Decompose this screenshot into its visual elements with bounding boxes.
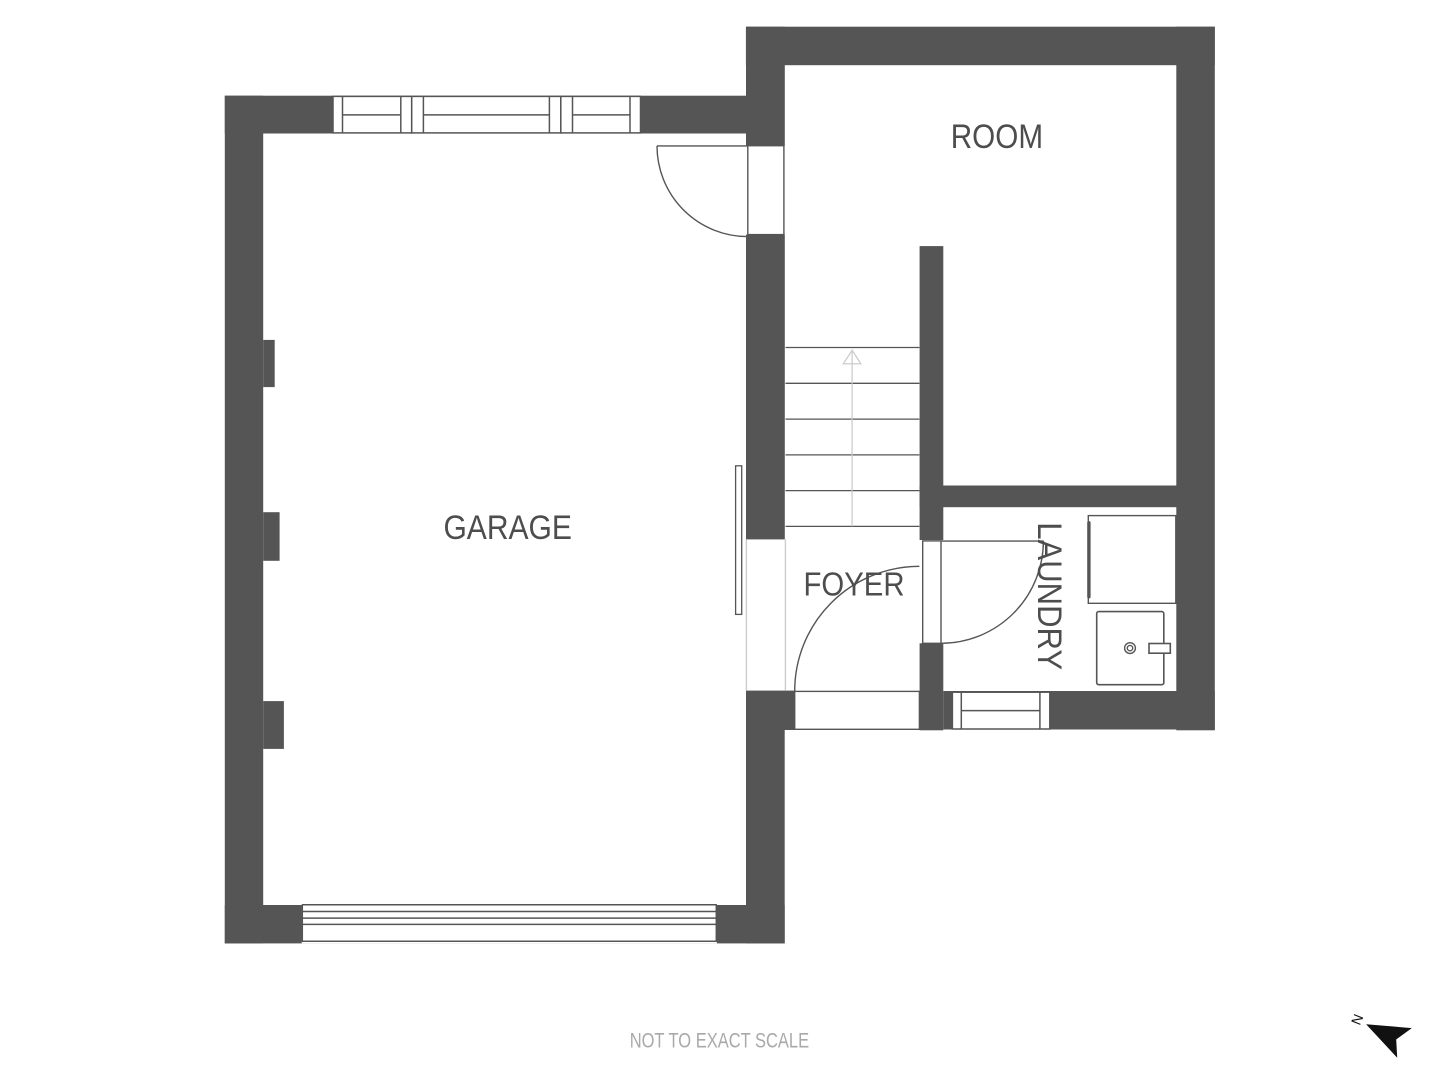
svg-text:FOYER: FOYER xyxy=(804,565,905,602)
svg-text:GARAGE: GARAGE xyxy=(443,509,572,547)
svg-text:NOT TO EXACT SCALE: NOT TO EXACT SCALE xyxy=(630,1030,809,1053)
svg-text:LAUNDRY: LAUNDRY xyxy=(1030,522,1068,670)
svg-text:ROOM: ROOM xyxy=(951,118,1043,156)
